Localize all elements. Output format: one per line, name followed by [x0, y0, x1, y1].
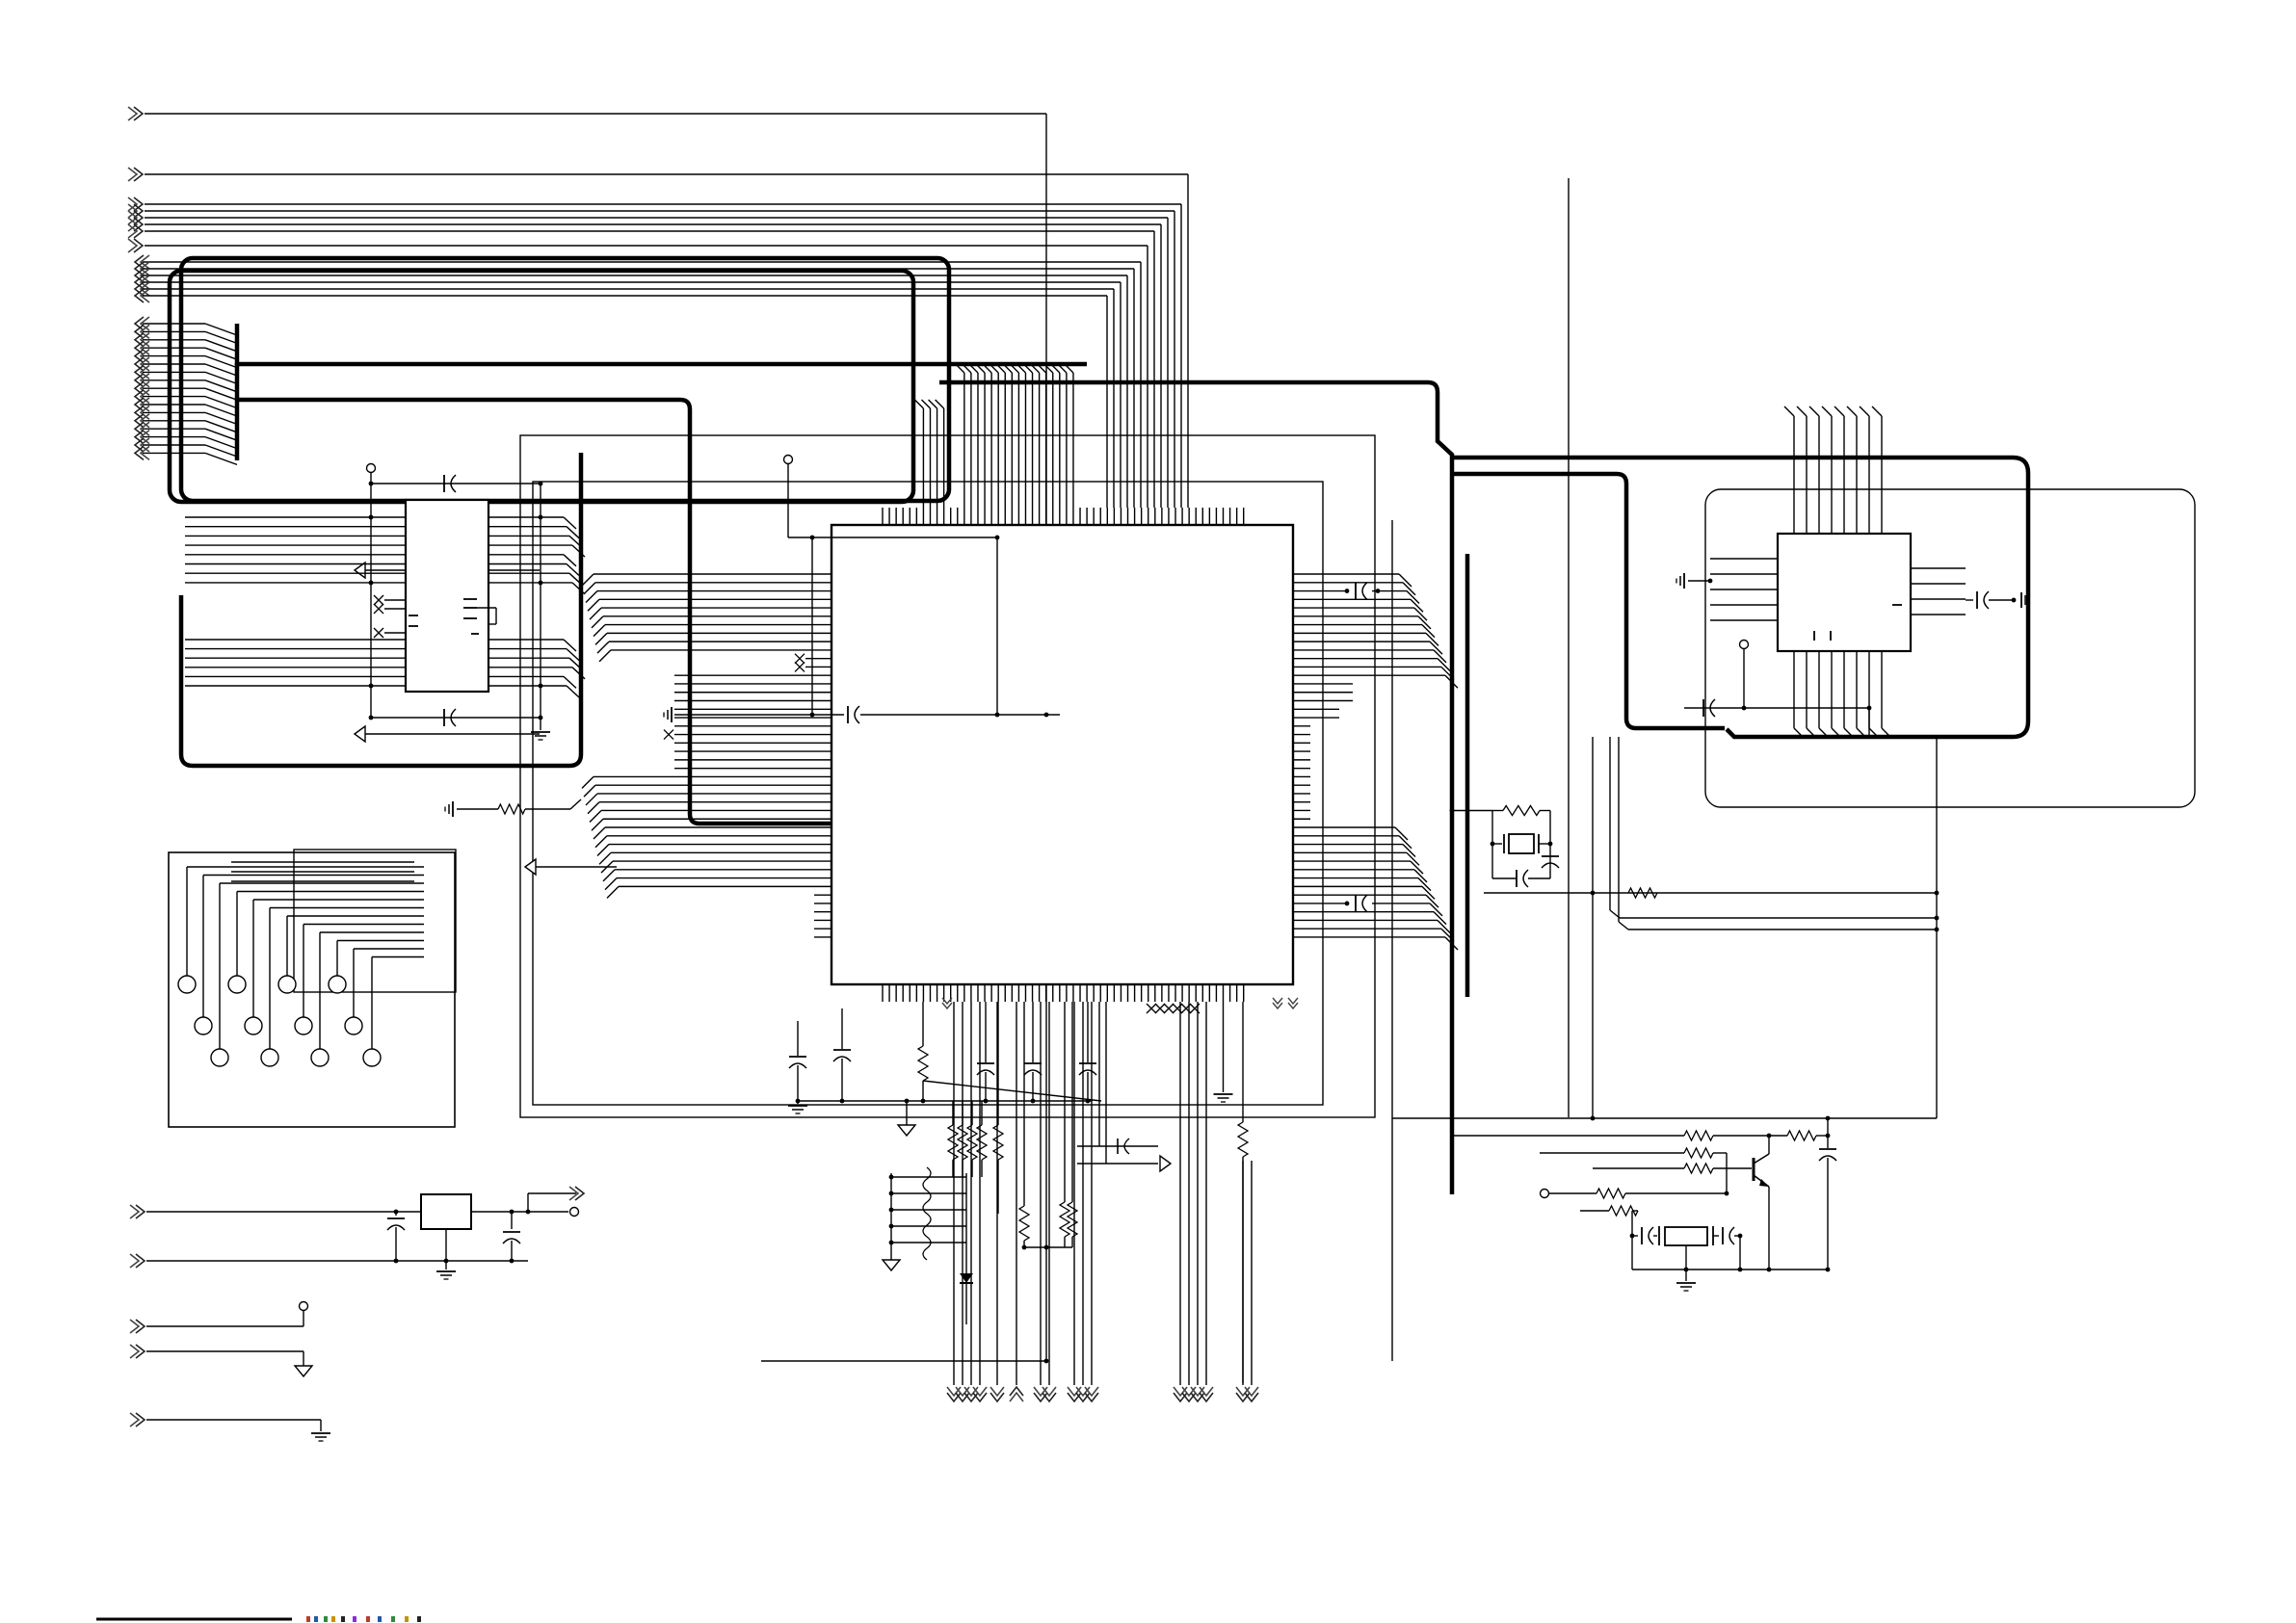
main-ic — [814, 508, 1310, 1002]
truncated-footer-text — [378, 1616, 382, 1622]
schematic-canvas — [0, 0, 2296, 1623]
truncated-footer-text — [391, 1616, 395, 1622]
truncated-footer-text — [324, 1616, 328, 1622]
truncated-footer-text — [405, 1616, 409, 1622]
truncated-footer-text — [353, 1616, 356, 1622]
schematic-svg — [0, 0, 2296, 1623]
truncated-footer-text — [366, 1616, 370, 1622]
truncated-footer-text — [314, 1616, 318, 1622]
truncated-footer-text — [306, 1616, 310, 1622]
truncated-footer-text — [417, 1616, 421, 1622]
truncated-footer-text — [331, 1616, 335, 1622]
truncated-footer-text — [341, 1616, 345, 1622]
